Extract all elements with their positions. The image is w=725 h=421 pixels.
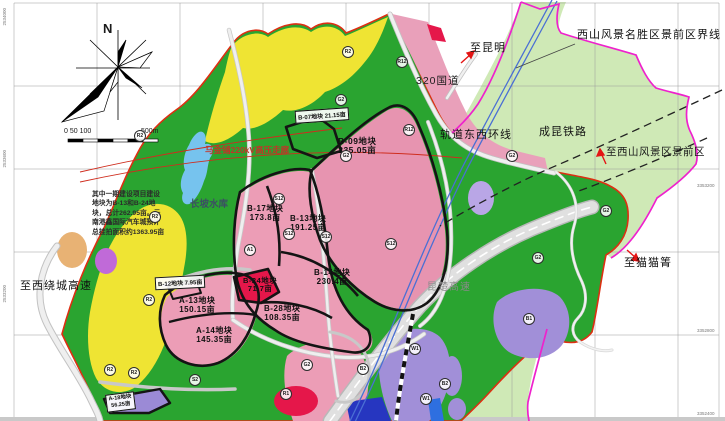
plot-b17-area: 173.8亩 (247, 214, 283, 223)
plot-b13-label: B-13地块 191.25亩 (290, 215, 326, 233)
g320-label: 320国道 (416, 76, 460, 88)
zone-code: R2 (149, 211, 161, 223)
zone-code: R2 (342, 46, 354, 58)
zone-code: R1 (280, 388, 292, 400)
zone-code: R2 (143, 294, 155, 306)
zone-code: S12 (320, 231, 332, 243)
zone-code: R2 (104, 364, 116, 376)
plot-b13-area: 191.25亩 (290, 224, 326, 233)
plot-a13-label: A-13地块 150.15亩 (179, 297, 215, 315)
zone-code: B2 (357, 363, 369, 375)
note-line-1: 其中一期建设项目建设 (92, 191, 160, 198)
zone-code: G2 (335, 94, 347, 106)
edge-coordinate: 3352400 (697, 411, 715, 416)
to-kunming-label: 至昆明 (470, 42, 506, 54)
zone-code: A1 (244, 244, 256, 256)
compass-north-label: N (103, 22, 112, 36)
plot-b14-label: B-14地块 230.4亩 (314, 269, 350, 287)
kunchu-expressway-label: 昆楚高速 (427, 282, 471, 293)
edge-coordinate: 3353200 (697, 183, 715, 188)
scenic-boundary-label: 西山风景名胜区景前区界线 (577, 29, 721, 41)
plot-a14-label: A-14地块 145.35亩 (196, 327, 232, 345)
plot-a13-area: 150.15亩 (179, 306, 215, 315)
zone-code: G2 (301, 359, 313, 371)
orange-plot (57, 232, 87, 268)
scale-start-label: 0 50 100 (64, 128, 91, 136)
plot-b14-area: 230.4亩 (314, 278, 350, 287)
plot-b24-label: B-24地块 71.7亩 (243, 277, 277, 294)
zone-code: R2 (128, 367, 140, 379)
phase-one-note: 其中一期建设项目建设 地块为B-13和B-24地 块，总计262.95亩。云 南… (92, 190, 204, 237)
zone-code: R12 (396, 56, 408, 68)
zone-code: B2 (439, 378, 451, 390)
zone-code: R12 (403, 124, 415, 136)
plot-b24-area: 71.7亩 (243, 285, 277, 293)
planning-map: N 0 50 100 500m 其中一期建设项目建设 地块为B-13和B-24地… (0, 0, 725, 421)
zone-code: S12 (385, 238, 397, 250)
plot-b28-label: B-28地块 108.35亩 (264, 305, 300, 323)
zone-code: G2 (532, 252, 544, 264)
zone-code: S12 (273, 193, 285, 205)
to-west-ring-expressway-label: 至西绕城高速 (20, 280, 92, 292)
zone-code: W1 (409, 343, 421, 355)
zone-code: S12 (283, 228, 295, 240)
chengkun-railway-label: 成昆铁路 (539, 126, 587, 138)
zone-code: S2 (189, 374, 201, 386)
zone-code: B1 (523, 313, 535, 325)
plot-b17-label: B-17地块 173.8亩 (247, 205, 283, 223)
zone-code: G2 (340, 150, 352, 162)
zone-code: R2 (134, 130, 146, 142)
reservoir-label: 长坡水库 (190, 200, 228, 210)
zone-code: W1 (420, 393, 432, 405)
edge-coordinate: 2533200 (2, 285, 7, 303)
to-maomaoqing-label: 至猫猫箐 (624, 257, 672, 269)
note-line-5: 总挂拍面积约1363.95亩 (92, 229, 164, 236)
edge-coordinate: 2533600 (2, 150, 7, 168)
compass-rose (62, 30, 152, 122)
note-line-2: 地块为B-13和B-24地 (92, 200, 155, 207)
plot-a14-area: 145.35亩 (196, 336, 232, 345)
to-xishan-label: 至西山风景区景前区 (606, 147, 705, 159)
plot-a18-label: A-18地块 56.25亩 (105, 391, 136, 412)
edge-coordinate: 3352800 (697, 328, 715, 333)
plot-b12-label: B-12地块 7.95亩 (155, 275, 206, 291)
edge-coordinate: 2534000 (2, 8, 7, 26)
power-corridor-label: 马金铺220kV高压走廊 (205, 146, 289, 155)
plot-b28-area: 108.35亩 (264, 314, 300, 323)
plot-a18-area: 56.25亩 (111, 401, 131, 409)
zone-code: G2 (506, 150, 518, 162)
metro-line-label: 轨道东西环线 (440, 129, 512, 141)
zone-code: G2 (600, 205, 612, 217)
